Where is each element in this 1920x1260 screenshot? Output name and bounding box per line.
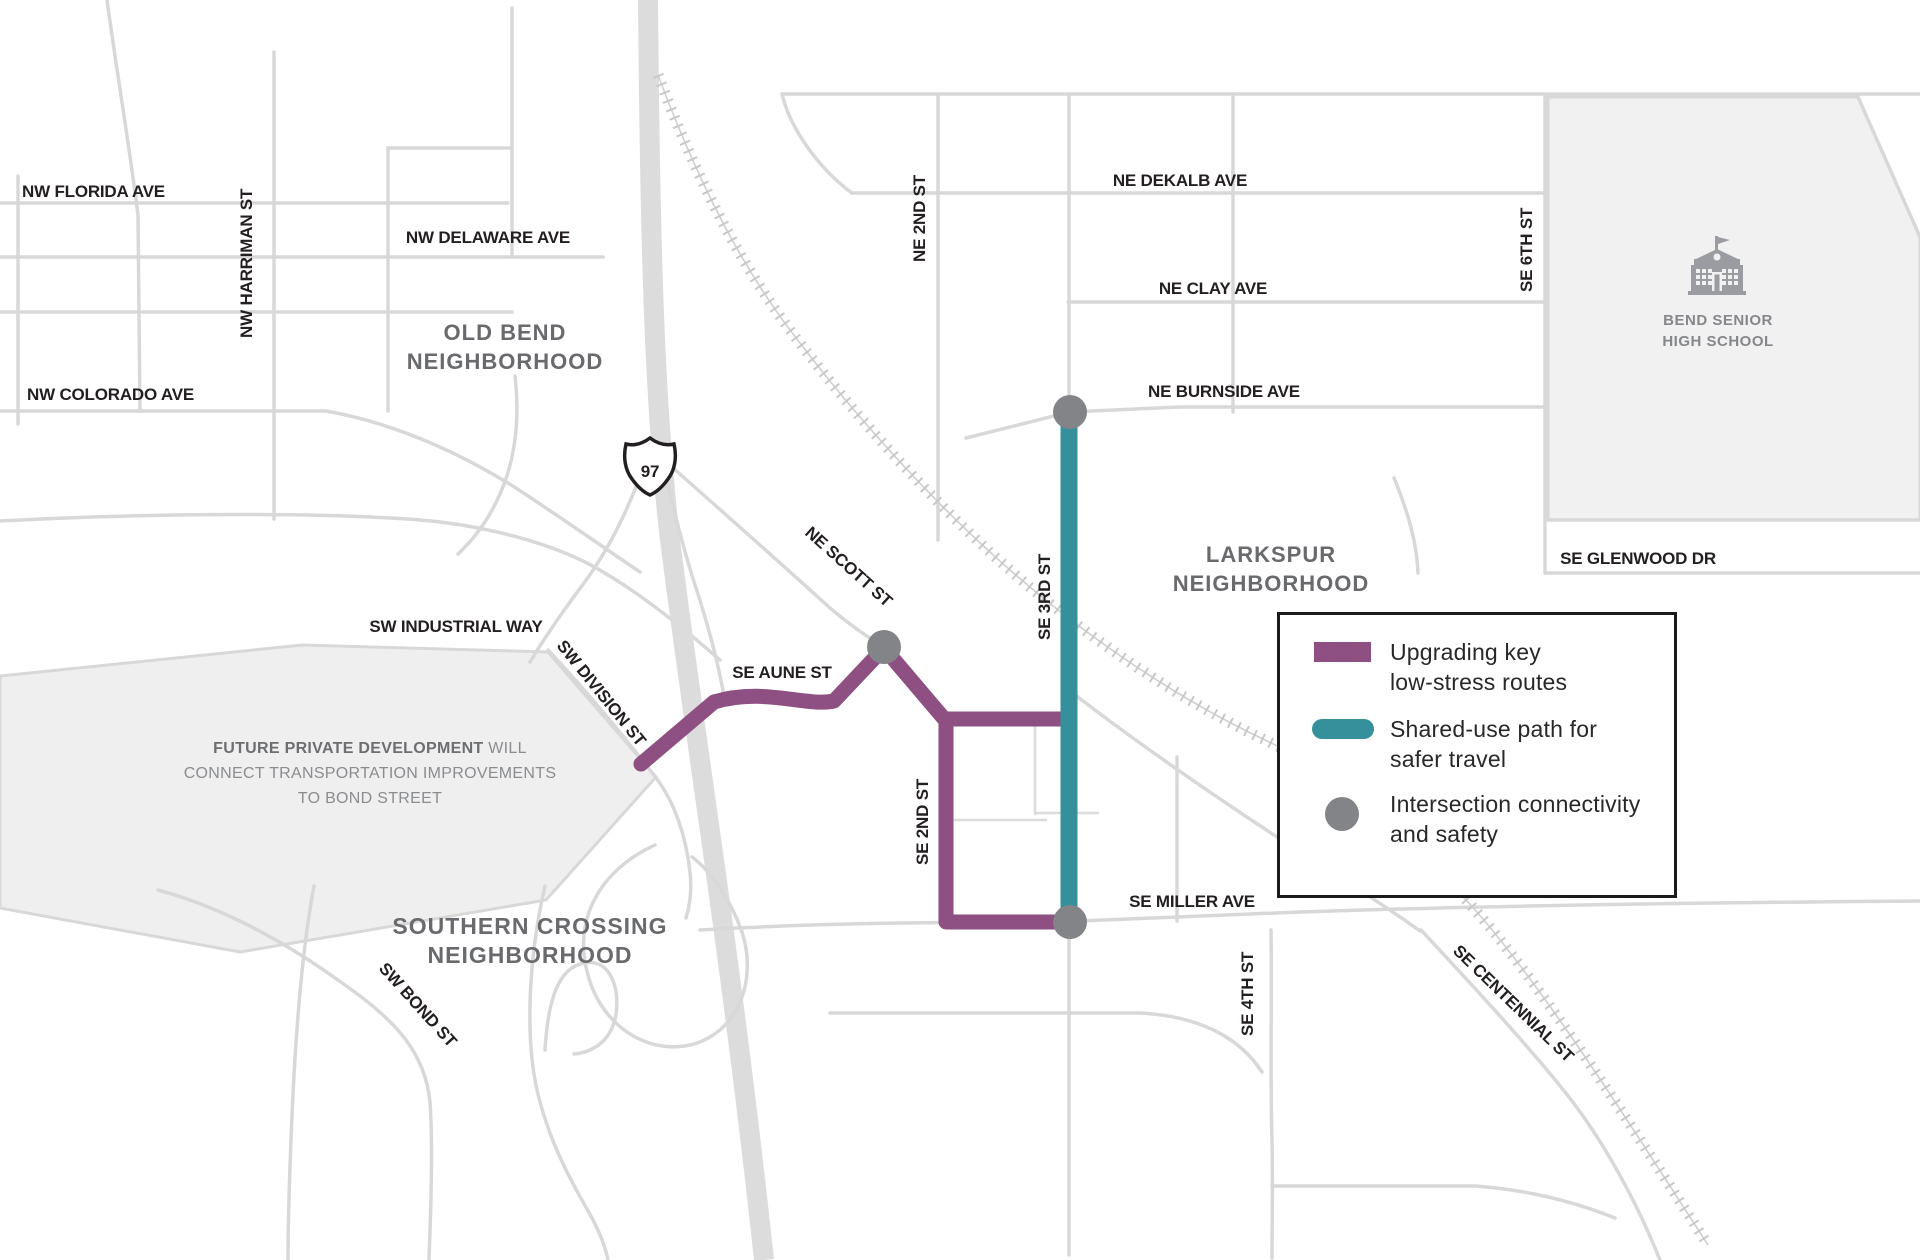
road — [107, 0, 140, 411]
street-label-se-4th-st: SE 4TH ST — [1238, 951, 1257, 1036]
neighborhood-label-larkspur: LARKSPUR NEIGHBORHOOD — [1121, 540, 1421, 598]
future-development-note: FUTURE PRIVATE DEVELOPMENT WILL CONNECT … — [175, 736, 565, 811]
neighborhood-label-line: OLD BEND — [355, 318, 655, 347]
legend-label-line: safer travel — [1390, 744, 1597, 774]
street-label-ne-scott-st: NE SCOTT ST — [801, 523, 896, 611]
se-4th-road-south — [1271, 930, 1272, 1258]
school-label: BEND SENIOR HIGH SCHOOL — [1628, 310, 1808, 352]
street-label-nw-delaware-ave: NW DELAWARE AVE — [406, 228, 570, 247]
intersection-dot — [1053, 905, 1087, 939]
neighborhood-label-line: NEIGHBORHOOD — [340, 941, 720, 970]
street-label-sw-bond-st: SW BOND ST — [375, 959, 461, 1052]
legend-label-line: Shared-use path for — [1390, 714, 1597, 744]
neighborhood-label-old-bend: OLD BEND NEIGHBORHOOD — [355, 318, 655, 376]
legend-label: Shared-use path for safer travel — [1390, 714, 1597, 774]
future-development-note-line: TO BOND STREET — [175, 786, 565, 811]
future-development-rest: WILL — [484, 740, 527, 757]
legend-symbol-cell — [1280, 789, 1390, 831]
street-label-se-glenwood-dr: SE GLENWOOD DR — [1560, 549, 1716, 568]
legend-label-line: Upgrading key — [1390, 637, 1567, 667]
intersection-dot — [1053, 395, 1087, 429]
intersection-dot — [867, 630, 901, 664]
street-label-sw-industrial-way: SW INDUSTRIAL WAY — [369, 617, 543, 636]
street-label-ne-dekalb-ave: NE DEKALB AVE — [1113, 171, 1247, 190]
legend-label-line: low-stress routes — [1390, 667, 1567, 697]
upgrade-route-swatch — [1314, 642, 1371, 662]
street-label-ne-burnside-ave: NE BURNSIDE AVE — [1148, 382, 1300, 401]
road — [830, 1013, 1262, 1072]
road — [545, 962, 617, 1054]
street-label-se-3rd-st: SE 3RD ST — [1035, 553, 1054, 640]
school-label-line: HIGH SCHOOL — [1628, 331, 1808, 352]
legend-label: Intersection connectivity and safety — [1390, 789, 1640, 849]
neighborhood-label-line: SOUTHERN CROSSING — [340, 912, 720, 941]
future-development-note-line: CONNECT TRANSPORTATION IMPROVEMENTS — [175, 761, 565, 786]
neighborhood-label-line: NEIGHBORHOOD — [1121, 569, 1421, 598]
neighborhood-label-line: LARKSPUR — [1121, 540, 1421, 569]
road — [1272, 1186, 1615, 1218]
neighborhood-label-southern-crossing: SOUTHERN CROSSING NEIGHBORHOOD — [340, 912, 720, 970]
road — [782, 94, 852, 193]
street-label-ne-clay-ave: NE CLAY AVE — [1159, 279, 1267, 298]
street-label-se-centennial-st: SE CENTENNIAL ST — [1449, 941, 1578, 1066]
legend-label: Upgrading key low-stress routes — [1390, 637, 1567, 697]
legend-symbol-cell — [1280, 637, 1390, 662]
street-label-se-miller-ave: SE MILLER AVE — [1129, 892, 1255, 911]
neighborhood-label-line: NEIGHBORHOOD — [355, 347, 655, 376]
se-centennial-road — [1421, 930, 1660, 1260]
map-legend: Upgrading key low-stress routes Shared-u… — [1277, 612, 1677, 898]
project-map: 97 NW FLORIDA AVE NW HARRIMAN ST NW DELA… — [0, 0, 1920, 1260]
legend-item-upgrade-routes: Upgrading key low-stress routes — [1280, 637, 1674, 697]
legend-item-shared-use-path: Shared-use path for safer travel — [1280, 714, 1674, 774]
road — [0, 411, 640, 572]
street-label-se-aune-st: SE AUNE ST — [732, 663, 832, 682]
intersection-dot-swatch — [1325, 797, 1359, 831]
street-label-nw-florida-ave: NW FLORIDA AVE — [22, 182, 165, 201]
legend-label-line: Intersection connectivity — [1390, 789, 1640, 819]
school-campus-area — [1548, 97, 1920, 520]
future-development-emphasis: FUTURE PRIVATE DEVELOPMENT — [213, 740, 483, 757]
legend-label-line: and safety — [1390, 819, 1640, 849]
street-label-se-6th-st: SE 6TH ST — [1517, 207, 1536, 292]
street-label-ne-2nd-st: NE 2ND ST — [910, 174, 929, 262]
legend-symbol-cell — [1280, 714, 1390, 739]
ne-burnside-road — [966, 407, 1545, 438]
highway-shield-number: 97 — [641, 462, 660, 481]
street-label-se-2nd-st: SE 2ND ST — [913, 778, 932, 865]
legend-item-intersection: Intersection connectivity and safety — [1280, 789, 1674, 849]
school-label-line: BEND SENIOR — [1628, 310, 1808, 331]
future-development-note-line: FUTURE PRIVATE DEVELOPMENT WILL — [175, 736, 565, 761]
street-label-nw-colorado-ave: NW COLORADO AVE — [27, 385, 194, 404]
street-label-nw-harriman-st: NW HARRIMAN ST — [237, 188, 256, 338]
shared-use-path-swatch — [1312, 719, 1374, 739]
